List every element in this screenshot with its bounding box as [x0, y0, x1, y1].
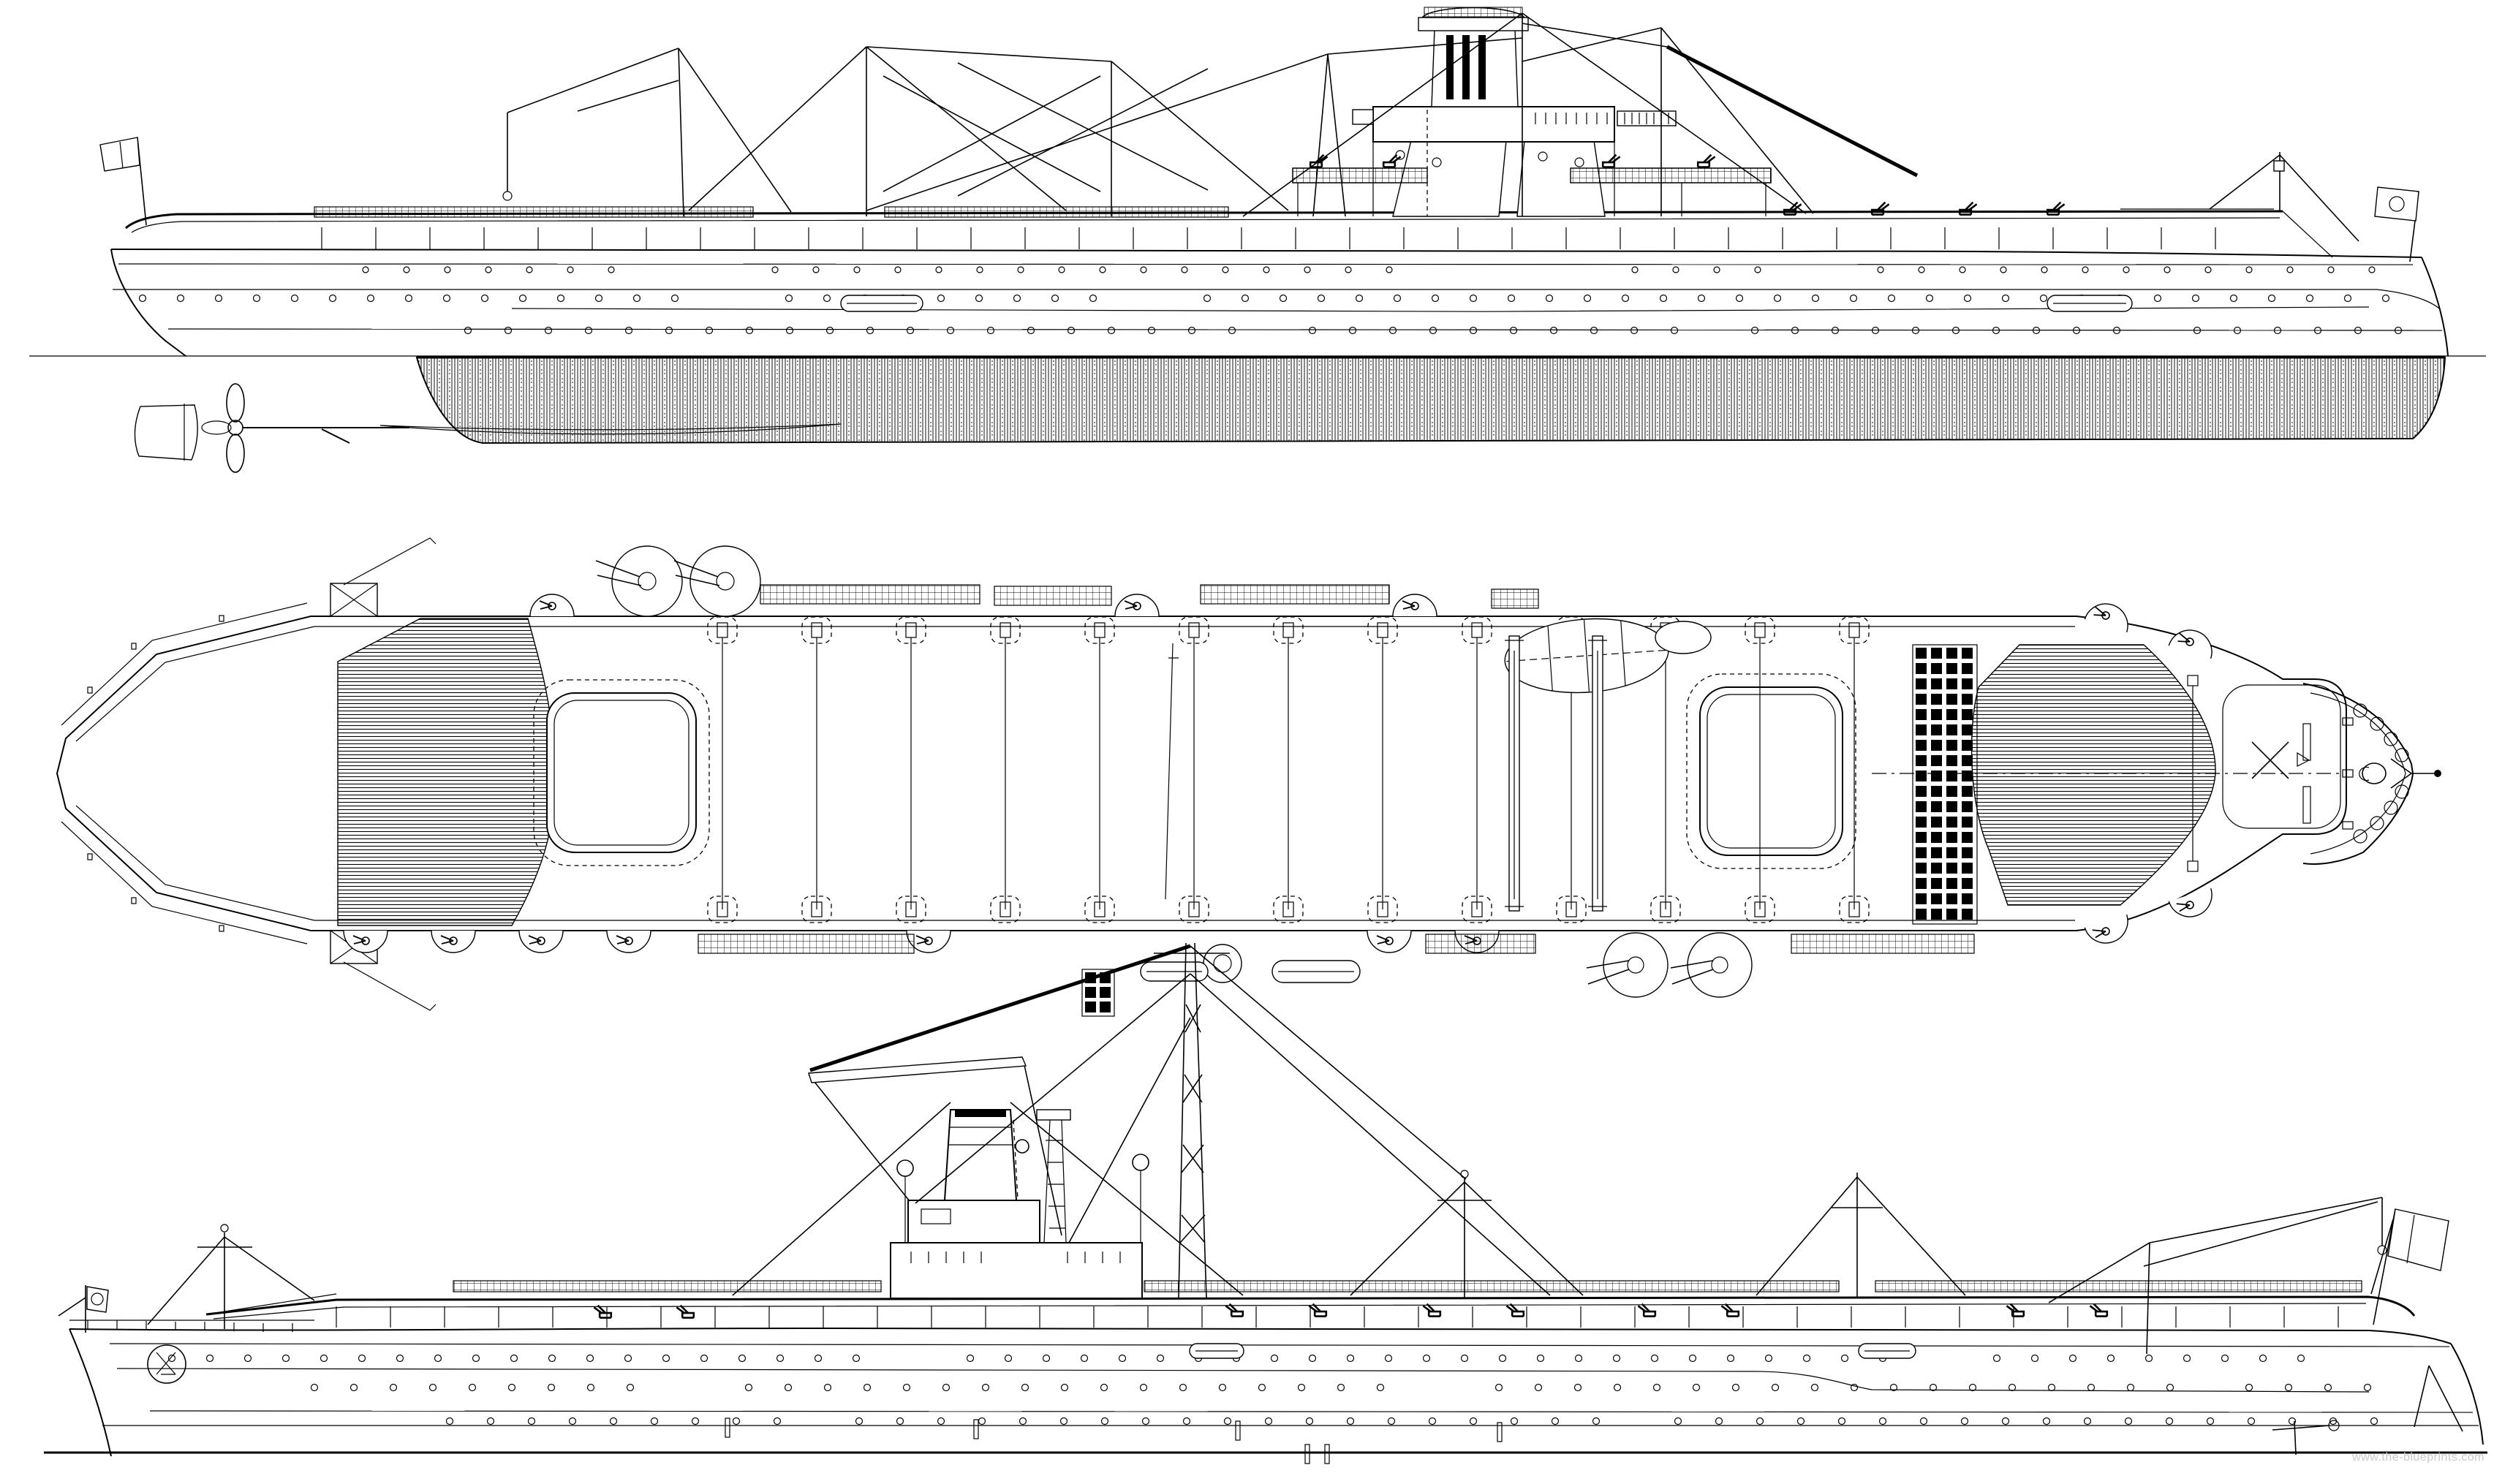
aft-crane [503, 48, 791, 216]
island-superstructure-port [891, 1110, 1149, 1298]
rudder [135, 404, 197, 461]
aa-gun-tub-port-aft-2 [674, 546, 760, 616]
view-flight-deck-plan [57, 538, 2441, 1016]
view-side-profile-starboard [29, 7, 2486, 472]
aa-gun-tub-port-aft [596, 546, 682, 616]
bow-jack-icon [58, 1285, 108, 1333]
aft-deck-hatched-area [338, 618, 555, 925]
island-superstructure [1293, 7, 1771, 216]
jackstaff-plan [2391, 759, 2435, 788]
masts-and-rigging-port [148, 943, 2463, 1455]
propeller-icon [202, 384, 409, 472]
elevator-forward [1687, 674, 1856, 868]
funnel [1432, 29, 1518, 107]
deck-support-struts-port [336, 1306, 2338, 1328]
stern-ensign-icon [2371, 1209, 2449, 1325]
view-side-profile-port [44, 943, 2487, 1464]
crane-boom-heavy [1667, 47, 1917, 175]
hull-port [69, 1320, 2483, 1456]
watermark-text: www.the-blueprints.com [2351, 1451, 2484, 1464]
crane-tower [1044, 1120, 1066, 1243]
draft-marks [725, 1418, 1502, 1464]
elevator-aft [534, 680, 709, 866]
stern-gangway [2272, 1366, 2463, 1455]
searchlight-plan [1203, 944, 1242, 983]
underwater-hull-hatching [380, 357, 2445, 443]
blueprint-canvas: www.the-blueprints.com [0, 0, 2494, 1484]
bow-flag-icon [2375, 187, 2419, 262]
aa-gun-tub-starboard-fwd [1587, 933, 1752, 997]
funnel-port [945, 1110, 1016, 1200]
plan-boats [1141, 961, 1360, 983]
stern-flag-icon [100, 137, 146, 225]
deck-support-struts [322, 227, 2215, 249]
porthole-rows-port [169, 1355, 2378, 1425]
plan-crane-aft-port [330, 538, 436, 616]
blueprint-page: www.the-blueprints.com [0, 0, 2494, 1484]
